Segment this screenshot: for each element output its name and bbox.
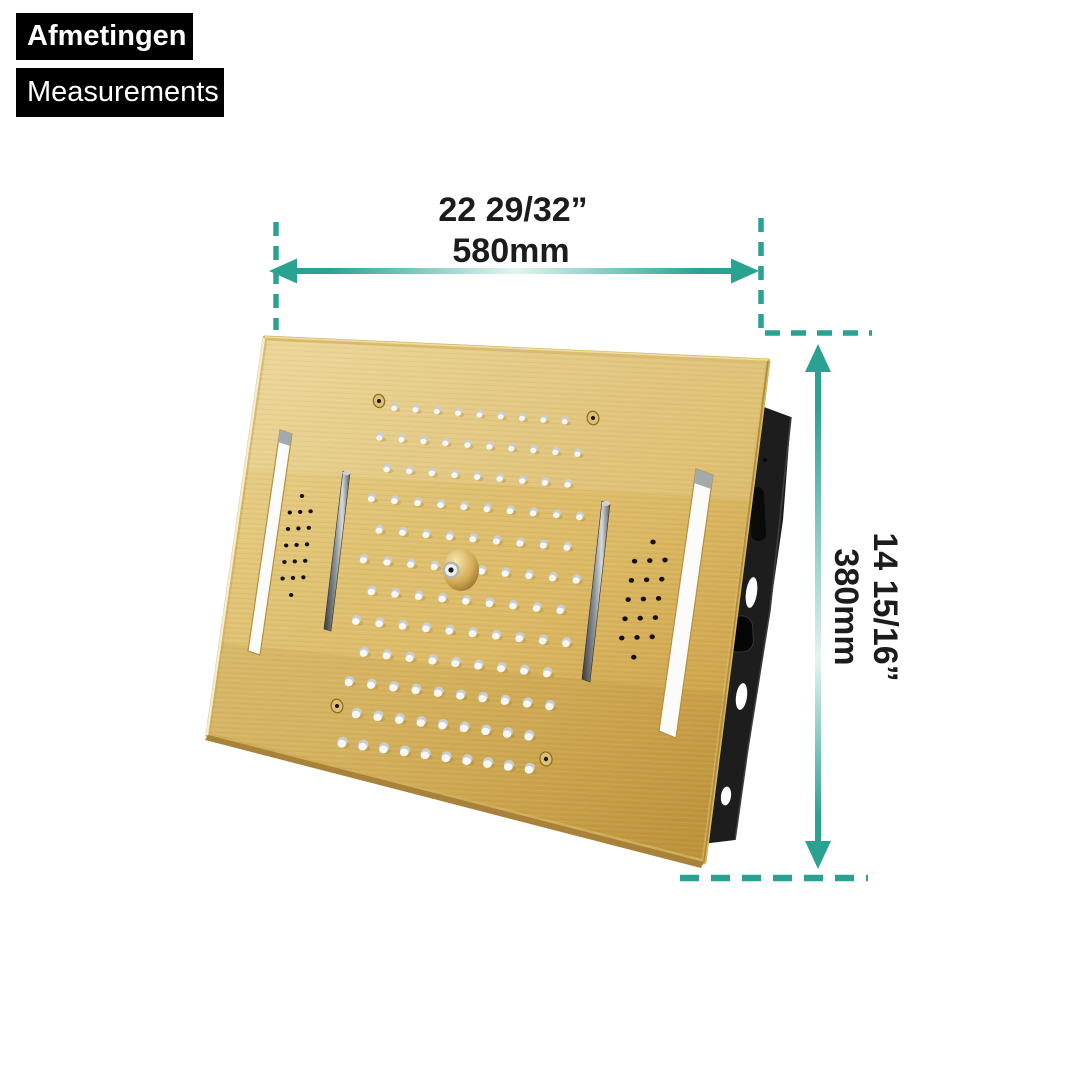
speaker-hole xyxy=(296,526,300,530)
nozzle-tip xyxy=(389,684,397,691)
nozzle-tip xyxy=(539,638,547,645)
nozzle-tip xyxy=(562,640,570,647)
nozzle-tip xyxy=(383,467,389,473)
nozzle-tip xyxy=(520,668,528,675)
speaker-hole xyxy=(300,494,304,498)
nozzle-tip xyxy=(483,506,490,512)
nozzle-tip xyxy=(406,655,414,662)
nozzle-tip xyxy=(552,450,558,455)
speaker-hole xyxy=(303,559,307,563)
speaker-hole xyxy=(647,558,652,563)
speaker-hole xyxy=(280,577,284,581)
nozzle-tip xyxy=(417,719,425,726)
nozzle-tip xyxy=(462,598,469,605)
nozzle-tip xyxy=(486,601,493,608)
nozzle-tip xyxy=(455,411,461,416)
nozzle-tip xyxy=(519,416,525,421)
speaker-hole xyxy=(298,510,302,514)
nozzle-tip xyxy=(375,620,383,627)
speaker-hole xyxy=(286,527,290,531)
diagram-svg: 22 29/32” 580mm 14 15/16” 380mm xyxy=(0,0,1080,1080)
nozzle-tip xyxy=(462,757,471,765)
nozzle-tip xyxy=(516,540,523,546)
nozzle-tip xyxy=(478,695,486,702)
nozzle-tip xyxy=(509,603,516,610)
nozzle-tip xyxy=(493,538,500,544)
arrowhead-right-icon xyxy=(731,259,759,284)
nozzle-tip xyxy=(422,625,430,632)
nozzle-tip xyxy=(573,577,580,583)
nozzle-tip xyxy=(399,623,407,630)
nozzle-tip xyxy=(451,660,459,667)
center-nozzle-hole xyxy=(448,567,453,572)
nozzle-tip xyxy=(442,441,448,446)
nozzle-tip xyxy=(456,692,464,699)
nozzle-tip xyxy=(398,437,404,442)
nozzle-tip xyxy=(523,700,531,707)
nozzle-tip xyxy=(492,633,500,640)
nozzle-tip xyxy=(474,474,480,480)
nozzle-tip xyxy=(476,412,482,417)
nozzle-tip xyxy=(503,730,511,737)
shower-head-product xyxy=(205,337,791,868)
nozzle-tip xyxy=(460,504,467,510)
waterfall-slot-right-cap xyxy=(602,501,610,506)
nozzle-tip xyxy=(438,722,446,729)
speaker-hole xyxy=(632,559,637,564)
measurement-diagram-page: Afmetingen Measurements xyxy=(0,0,1080,1080)
nozzle-tip xyxy=(352,711,360,718)
nozzle-tip xyxy=(399,530,406,536)
nozzle-tip xyxy=(352,618,360,625)
nozzle-tip xyxy=(420,439,426,444)
nozzle-tip xyxy=(486,444,492,449)
nozzle-tip xyxy=(358,743,367,751)
speaker-hole xyxy=(638,616,643,621)
speaker-hole xyxy=(634,635,639,640)
nozzle-tip xyxy=(337,740,346,748)
nozzle-tip xyxy=(525,573,532,579)
nozzle-tip xyxy=(543,670,551,677)
speaker-hole xyxy=(622,616,627,621)
label-measurements: Measurements xyxy=(16,68,224,117)
speaker-hole xyxy=(656,596,661,601)
nozzle-tip xyxy=(564,482,570,488)
nozzle-tip xyxy=(556,608,563,615)
nozzle-tip xyxy=(483,760,492,768)
nozzle-tip xyxy=(498,414,504,419)
nozzle-tip xyxy=(434,409,440,414)
nozzle-tip xyxy=(576,514,583,520)
speaker-hole xyxy=(284,544,288,548)
nozzle-tip xyxy=(415,593,422,600)
nozzle-tip xyxy=(345,679,353,686)
nozzle-tip xyxy=(460,725,468,732)
nozzle-tip xyxy=(391,591,398,598)
nozzle-tip xyxy=(395,716,403,723)
nozzle-tip xyxy=(376,435,382,440)
speaker-hole xyxy=(291,576,295,580)
nozzle-tip xyxy=(360,557,367,563)
nozzle-tip xyxy=(515,635,523,642)
nozzle-tip xyxy=(400,749,409,757)
nozzle-tip xyxy=(496,476,502,482)
nozzle-tip xyxy=(373,714,381,721)
speaker-hole xyxy=(619,636,624,641)
speaker-hole xyxy=(301,575,305,579)
nozzle-tip xyxy=(375,528,382,534)
nozzle-tip xyxy=(542,480,548,486)
nozzle-tip xyxy=(441,754,450,762)
label-measurements-text: Measurements xyxy=(27,76,219,109)
nozzle-tip xyxy=(368,589,375,596)
speaker-hole xyxy=(294,543,298,547)
speaker-hole xyxy=(629,578,634,583)
nozzle-tip xyxy=(379,746,388,754)
nozzle-tip xyxy=(429,470,435,476)
nozzle-tip xyxy=(412,687,420,694)
nozzle-tip xyxy=(501,698,509,705)
nozzle-tip xyxy=(508,446,514,451)
width-metric-text: 580mm xyxy=(452,232,569,270)
nozzle-tip xyxy=(549,575,556,581)
nozzle-tip xyxy=(553,512,560,518)
label-afmetingen-text: Afmetingen xyxy=(27,20,187,53)
nozzle-tip xyxy=(540,543,547,549)
speaker-hole xyxy=(644,577,649,582)
speaker-hole xyxy=(308,509,312,513)
speaker-hole xyxy=(305,542,309,546)
width-dimension: 22 29/32” 580mm xyxy=(269,191,872,333)
nozzle-tip xyxy=(383,652,391,659)
nozzle-tip xyxy=(497,665,505,672)
nozzle-tip xyxy=(438,596,445,603)
bracket-screw-hole xyxy=(763,458,767,462)
waterfall-slot-left-cap xyxy=(343,471,351,475)
nozzle-tip xyxy=(469,536,476,542)
nozzle-tip xyxy=(428,658,436,665)
nozzle-tip xyxy=(524,733,532,740)
nozzle-tip xyxy=(545,703,553,710)
nozzle-tip xyxy=(437,502,444,508)
nozzle-tip xyxy=(574,451,580,456)
speaker-hole xyxy=(631,655,636,660)
speaker-hole xyxy=(641,597,646,602)
nozzle-tip xyxy=(446,534,453,540)
nozzle-tip xyxy=(481,728,489,735)
height-metric-text: 380mm xyxy=(827,548,865,665)
nozzle-tip xyxy=(368,496,375,502)
speaker-hole xyxy=(293,559,297,563)
speaker-hole xyxy=(650,634,655,639)
speaker-hole xyxy=(626,597,631,602)
nozzle-tip xyxy=(474,663,482,670)
nozzle-tip xyxy=(562,419,568,424)
nozzle-tip xyxy=(540,417,546,422)
nozzle-tip xyxy=(391,406,397,411)
nozzle-tip xyxy=(445,628,453,635)
nozzle-tip xyxy=(421,752,430,760)
speaker-hole xyxy=(662,558,667,563)
speaker-hole xyxy=(650,540,655,545)
nozzle-tip xyxy=(360,650,368,657)
nozzle-tip xyxy=(414,500,421,506)
nozzle-tip xyxy=(563,545,570,551)
label-afmetingen: Afmetingen xyxy=(16,13,193,60)
speaker-hole xyxy=(659,577,664,582)
nozzle-tip xyxy=(406,469,412,475)
nozzle-tip xyxy=(431,564,438,570)
nozzle-tip xyxy=(469,630,477,637)
width-imperial-text: 22 29/32” xyxy=(438,191,587,229)
nozzle-tip xyxy=(422,532,429,538)
nozzle-tip xyxy=(413,407,419,412)
speaker-hole xyxy=(307,526,311,530)
nozzle-tip xyxy=(507,508,514,514)
nozzle-tip xyxy=(519,478,525,484)
nozzle-tip xyxy=(391,498,398,504)
nozzle-tip xyxy=(504,763,513,771)
arrowhead-up-icon xyxy=(805,344,831,372)
speaker-hole xyxy=(288,511,292,515)
nozzle-tip xyxy=(451,472,457,478)
nozzle-tip xyxy=(533,605,540,612)
nozzle-tip xyxy=(434,690,442,697)
nozzle-tip xyxy=(407,562,414,568)
nozzle-tip xyxy=(367,682,375,689)
arrowhead-down-icon xyxy=(805,841,831,869)
height-imperial-text: 14 15/16” xyxy=(866,532,904,681)
nozzle-tip xyxy=(530,510,537,516)
speaker-hole xyxy=(653,615,658,620)
nozzle-tip xyxy=(530,448,536,453)
arrowhead-left-icon xyxy=(269,259,297,284)
nozzle-tip xyxy=(464,442,470,447)
nozzle-tip xyxy=(383,559,390,565)
speaker-hole xyxy=(282,560,286,564)
nozzle-tip xyxy=(502,571,509,577)
nozzle-tip xyxy=(478,568,485,574)
speaker-hole xyxy=(289,593,293,597)
nozzle-tip xyxy=(525,766,534,774)
